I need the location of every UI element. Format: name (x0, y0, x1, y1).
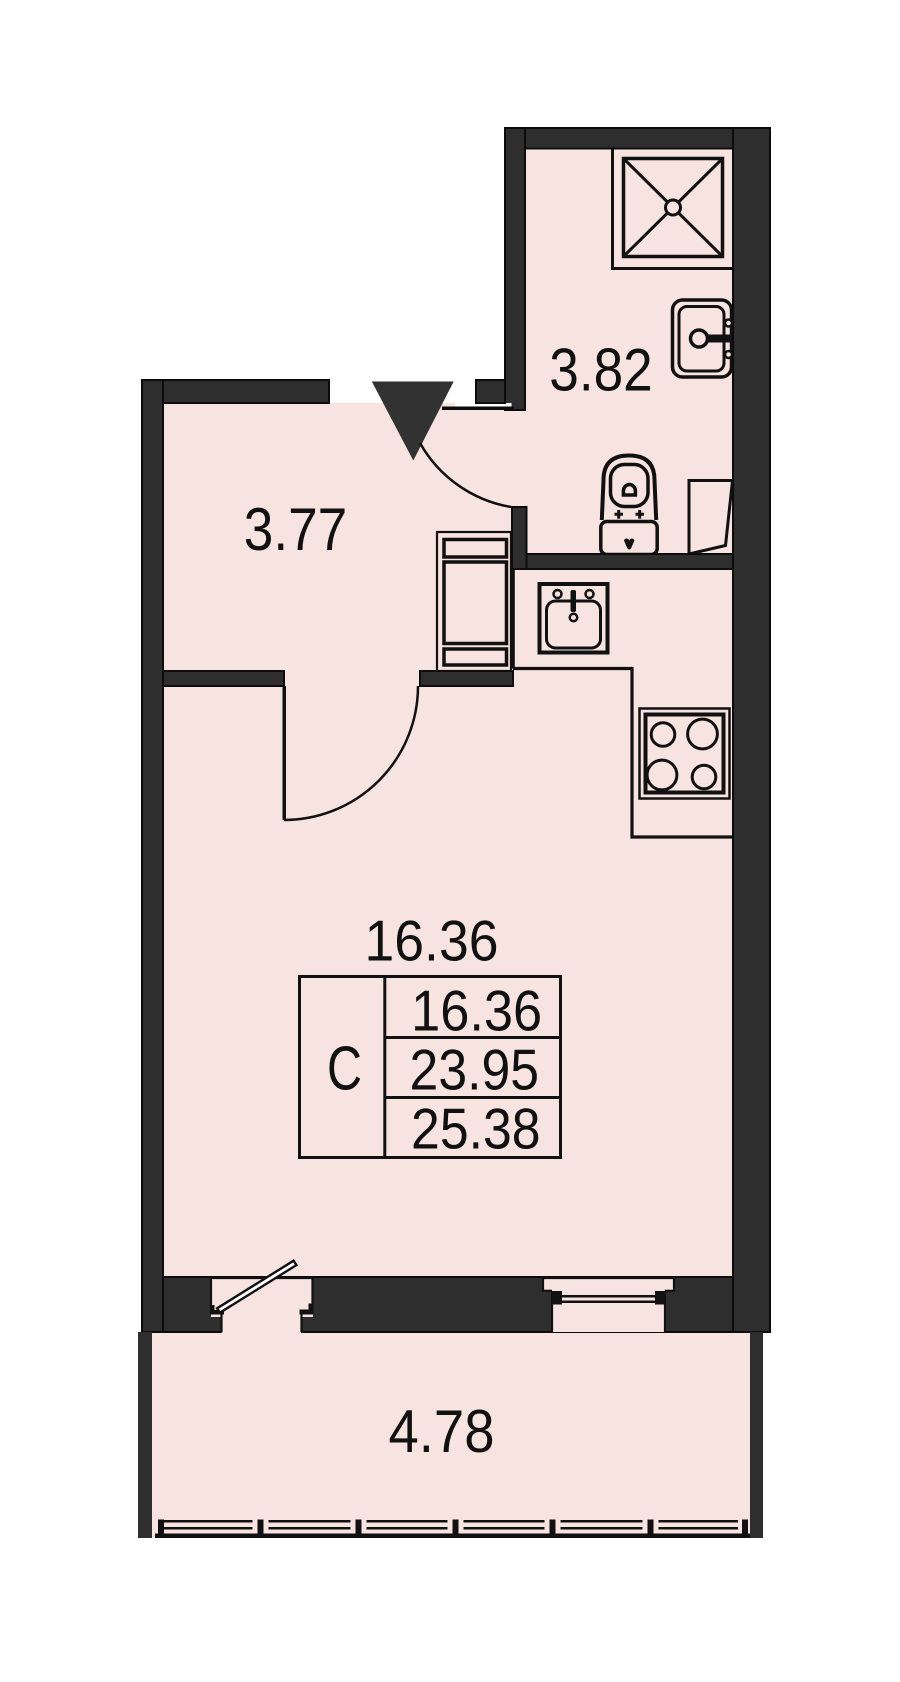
svg-text:16.36: 16.36 (411, 980, 542, 1044)
svg-text:4.78: 4.78 (389, 1398, 495, 1465)
svg-text:3.77: 3.77 (244, 496, 348, 563)
svg-text:16.36: 16.36 (365, 910, 499, 974)
svg-text:C: C (327, 1035, 362, 1104)
svg-text:25.38: 25.38 (411, 1098, 541, 1162)
svg-text:3.82: 3.82 (549, 337, 653, 404)
svg-text:23.95: 23.95 (410, 1039, 540, 1103)
